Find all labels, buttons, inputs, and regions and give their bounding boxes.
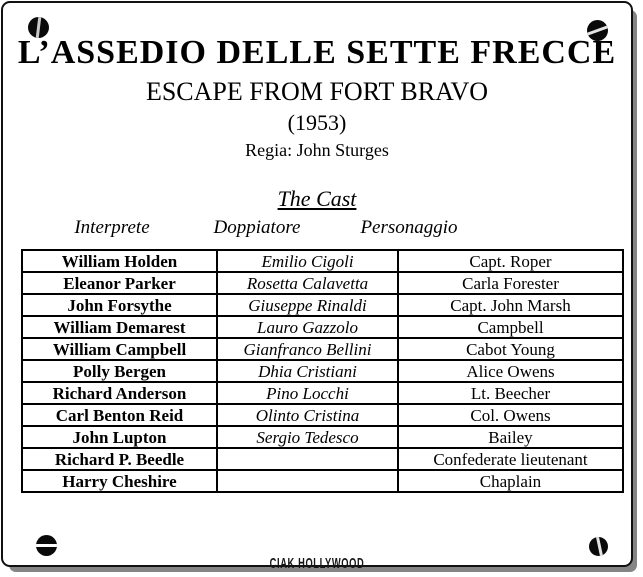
dubber-cell: Olinto Cristina <box>217 404 398 426</box>
table-row: William Campbell Gianfranco Bellini Cabo… <box>22 338 623 360</box>
actor-cell: Richard Anderson <box>22 382 217 404</box>
original-title: ESCAPE FROM FORT BRAVO <box>3 79 631 105</box>
table-row: Eleanor Parker Rosetta Calavetta Carla F… <box>22 272 623 294</box>
header: L’ASSEDIO DELLE SETTE FRECCE ESCAPE FROM… <box>3 3 631 210</box>
column-header-personaggio: Personaggio <box>360 217 457 239</box>
character-cell: Cabot Young <box>398 338 623 360</box>
character-cell: Col. Owens <box>398 404 623 426</box>
italian-title: L’ASSEDIO DELLE SETTE FRECCE <box>3 36 631 70</box>
actor-cell: William Demarest <box>22 316 217 338</box>
column-header-interprete: Interprete <box>74 217 149 239</box>
screw-icon-bottom-right <box>589 537 608 556</box>
table-row: Richard P. Beedle Confederate lieutenant <box>22 448 623 470</box>
table-row: Carl Benton Reid Olinto Cristina Col. Ow… <box>22 404 623 426</box>
dubber-cell <box>217 448 398 470</box>
dubber-cell: Emilio Cigoli <box>217 250 398 272</box>
character-cell: Capt. Roper <box>398 250 623 272</box>
character-cell: Alice Owens <box>398 360 623 382</box>
screw-slot <box>35 17 41 38</box>
character-cell: Capt. John Marsh <box>398 294 623 316</box>
screw-slot <box>587 25 608 36</box>
director-credit: Regia: John Sturges <box>3 141 631 159</box>
actor-cell: William Campbell <box>22 338 217 360</box>
character-cell: Campbell <box>398 316 623 338</box>
section-heading: The Cast <box>3 188 631 210</box>
dubber-cell: Rosetta Calavetta <box>217 272 398 294</box>
table-row: William Holden Emilio Cigoli Capt. Roper <box>22 250 623 272</box>
actor-cell: Polly Bergen <box>22 360 217 382</box>
section-heading-text: The Cast <box>278 186 357 211</box>
table-row: John Lupton Sergio Tedesco Bailey <box>22 426 623 448</box>
table-row: John Forsythe Giuseppe Rinaldi Capt. Joh… <box>22 294 623 316</box>
dubber-cell: Dhia Cristiani <box>217 360 398 382</box>
character-cell: Confederate lieutenant <box>398 448 623 470</box>
actor-cell: Eleanor Parker <box>22 272 217 294</box>
cast-card: L’ASSEDIO DELLE SETTE FRECCE ESCAPE FROM… <box>1 1 633 567</box>
screw-icon-top-left <box>28 17 49 38</box>
character-cell: Bailey <box>398 426 623 448</box>
dubber-cell: Pino Locchi <box>217 382 398 404</box>
dubber-cell: Lauro Gazzolo <box>217 316 398 338</box>
column-headers: Interprete Doppiatore Personaggio <box>3 217 643 243</box>
dubber-cell <box>217 470 398 492</box>
dubber-cell: Gianfranco Bellini <box>217 338 398 360</box>
cast-table: William Holden Emilio Cigoli Capt. Roper… <box>21 249 624 493</box>
actor-cell: John Forsythe <box>22 294 217 316</box>
actor-cell: Richard P. Beedle <box>22 448 217 470</box>
actor-cell: Harry Cheshire <box>22 470 217 492</box>
release-year: (1953) <box>3 112 631 134</box>
table-row: Harry Cheshire Chaplain <box>22 470 623 492</box>
actor-cell: William Holden <box>22 250 217 272</box>
screw-icon-bottom-left <box>36 535 57 556</box>
screw-icon-top-right <box>587 20 608 41</box>
character-cell: Carla Forester <box>398 272 623 294</box>
screw-slot <box>36 544 57 547</box>
table-row: William Demarest Lauro Gazzolo Campbell <box>22 316 623 338</box>
screw-slot <box>595 537 603 556</box>
actor-cell: John Lupton <box>22 426 217 448</box>
column-header-doppiatore: Doppiatore <box>214 217 301 239</box>
table-row: Richard Anderson Pino Locchi Lt. Beecher <box>22 382 623 404</box>
dubber-cell: Sergio Tedesco <box>217 426 398 448</box>
actor-cell: Carl Benton Reid <box>22 404 217 426</box>
ciak-hollywood-watermark: CIAK HOLLYWOOD <box>270 555 365 572</box>
table-row: Polly Bergen Dhia Cristiani Alice Owens <box>22 360 623 382</box>
dubber-cell: Giuseppe Rinaldi <box>217 294 398 316</box>
character-cell: Lt. Beecher <box>398 382 623 404</box>
character-cell: Chaplain <box>398 470 623 492</box>
